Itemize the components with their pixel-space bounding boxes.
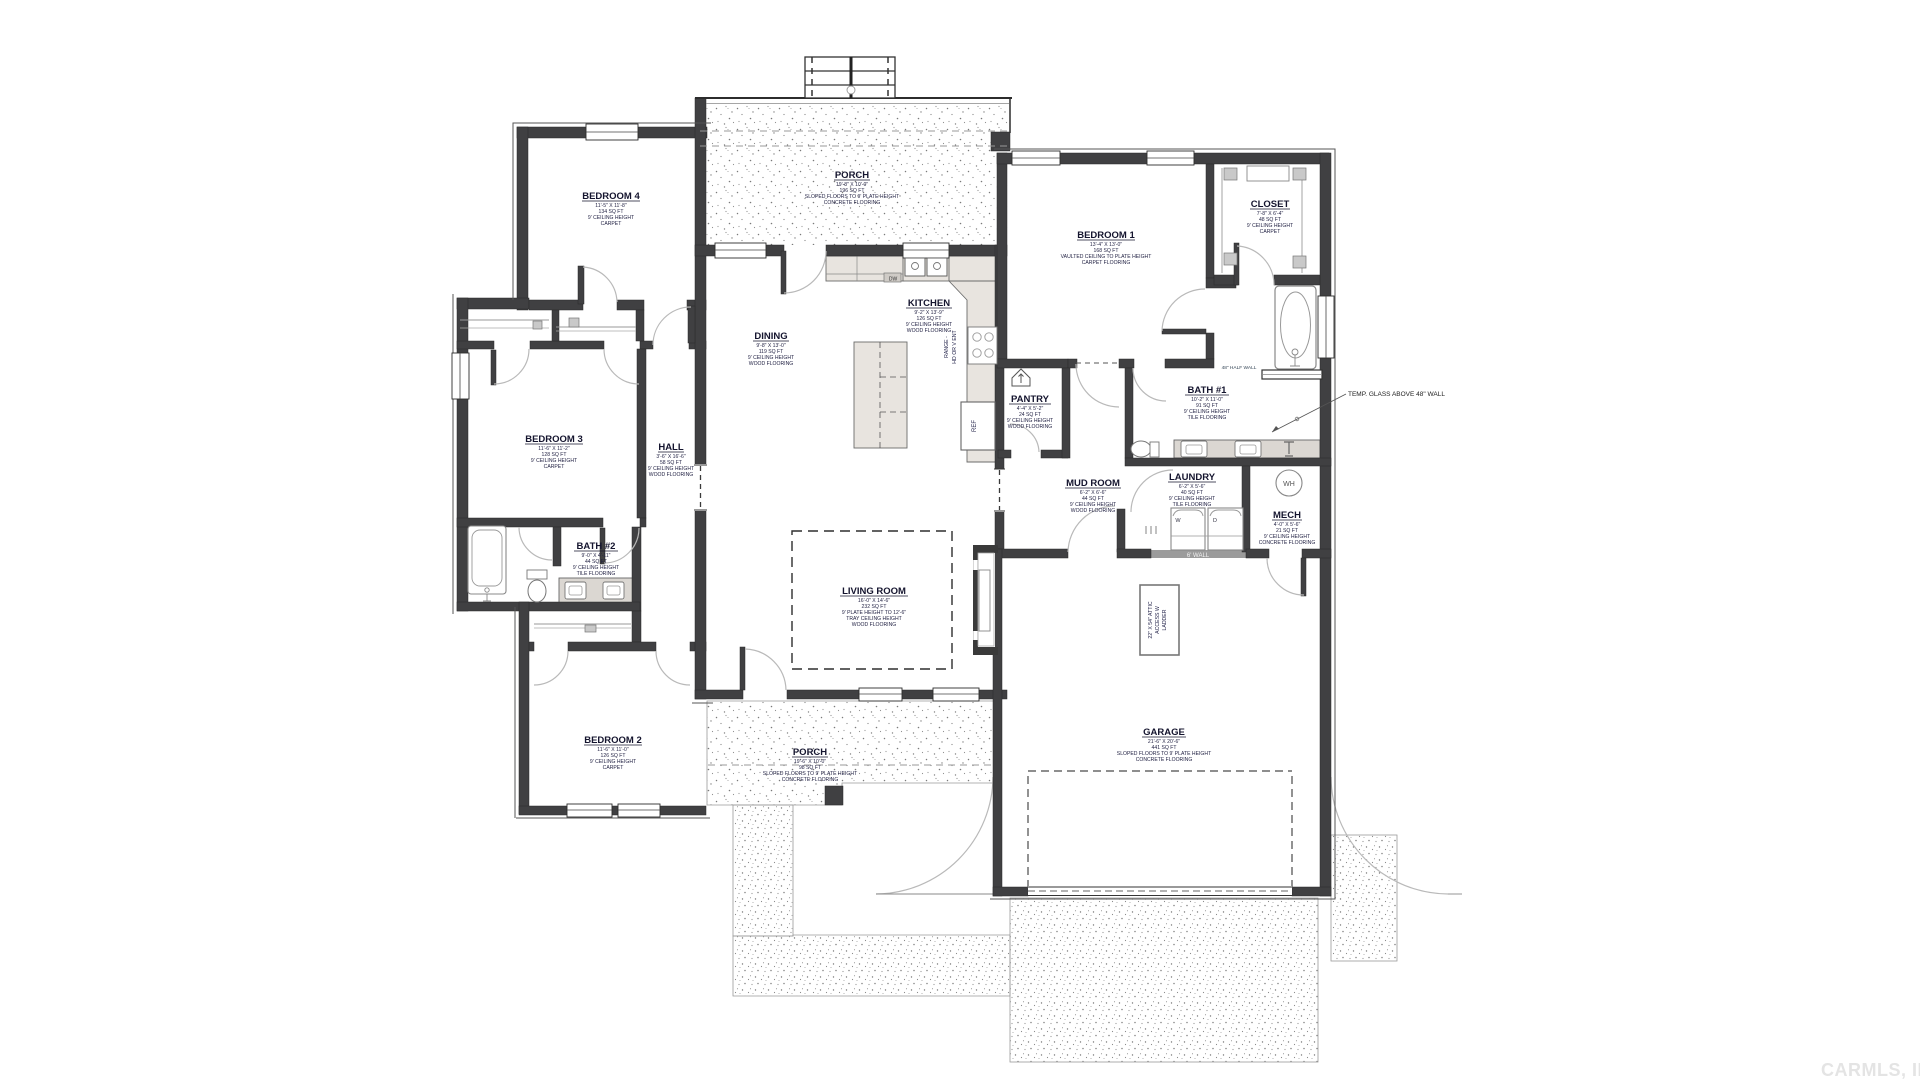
- svg-text:DW: DW: [889, 277, 898, 283]
- svg-text:GARAGE: GARAGE: [1143, 727, 1185, 738]
- svg-text:REF: REF: [972, 420, 978, 432]
- svg-text:ACCESS W: ACCESS W: [1155, 606, 1161, 634]
- svg-text:TILE FLOORING: TILE FLOORING: [577, 571, 616, 577]
- svg-text:W: W: [1175, 518, 1181, 524]
- svg-text:CARPET: CARPET: [1260, 229, 1281, 235]
- svg-text:WOOD FLOORING: WOOD FLOORING: [1071, 508, 1115, 514]
- svg-text:WOOD FLOORING: WOOD FLOORING: [907, 328, 951, 334]
- svg-text:CLOSET: CLOSET: [1251, 199, 1290, 210]
- svg-text:LIVING ROOM: LIVING ROOM: [842, 586, 906, 597]
- svg-text:LADDER: LADDER: [1162, 609, 1168, 630]
- svg-text:BATH #2: BATH #2: [577, 541, 616, 552]
- svg-text:CONCRETE FLOORING: CONCRETE FLOORING: [782, 777, 839, 783]
- svg-text:WOOD FLOORING: WOOD FLOORING: [749, 361, 793, 367]
- svg-text:WOOD FLOORING: WOOD FLOORING: [1008, 424, 1052, 430]
- svg-text:CONCRETE FLOORING: CONCRETE FLOORING: [824, 200, 881, 206]
- svg-text:TILE FLOORING: TILE FLOORING: [1188, 415, 1227, 421]
- svg-text:TEMP. GLASS ABOVE 48" WALL: TEMP. GLASS ABOVE 48" WALL: [1348, 391, 1445, 398]
- svg-text:BEDROOM 2: BEDROOM 2: [584, 735, 642, 746]
- svg-text:CARPET FLOORING: CARPET FLOORING: [1082, 260, 1131, 266]
- svg-text:CARMLS, INC: CARMLS, INC: [1821, 1060, 1920, 1080]
- svg-text:TILE FLOORING: TILE FLOORING: [1173, 502, 1212, 508]
- svg-text:PORCH: PORCH: [835, 170, 869, 181]
- svg-text:CARPET: CARPET: [603, 765, 624, 771]
- svg-text:MUD ROOM: MUD ROOM: [1066, 478, 1120, 489]
- svg-text:BEDROOM 3: BEDROOM 3: [525, 434, 583, 445]
- svg-text:D: D: [1213, 518, 1217, 524]
- svg-text:CONCRETE FLOORING: CONCRETE FLOORING: [1259, 540, 1316, 546]
- svg-text:PANTRY: PANTRY: [1011, 394, 1050, 405]
- svg-text:RANGE -: RANGE -: [944, 336, 950, 358]
- svg-text:HD OR V ENT: HD OR V ENT: [952, 329, 958, 363]
- svg-text:6' WALL: 6' WALL: [1187, 553, 1210, 559]
- svg-text:CONCRETE FLOORING: CONCRETE FLOORING: [1136, 757, 1193, 763]
- svg-text:MECH: MECH: [1273, 510, 1301, 521]
- svg-text:BEDROOM 4: BEDROOM 4: [582, 191, 640, 202]
- svg-text:BEDROOM 1: BEDROOM 1: [1077, 230, 1135, 241]
- svg-text:PORCH: PORCH: [793, 747, 827, 758]
- svg-text:DINING: DINING: [754, 331, 787, 342]
- svg-text:KITCHEN: KITCHEN: [908, 298, 950, 309]
- svg-text:CARPET: CARPET: [544, 464, 565, 470]
- svg-text:BATH #1: BATH #1: [1188, 385, 1228, 396]
- svg-text:HALL: HALL: [658, 442, 684, 453]
- svg-text:WH: WH: [1283, 481, 1295, 488]
- svg-text:22" X 54" ATTIC: 22" X 54" ATTIC: [1148, 601, 1154, 639]
- svg-text:48" HALF WALL: 48" HALF WALL: [1222, 365, 1257, 371]
- svg-text:WOOD FLOORING: WOOD FLOORING: [852, 622, 896, 628]
- svg-text:LAUNDRY: LAUNDRY: [1169, 472, 1216, 483]
- svg-text:WOOD FLOORING: WOOD FLOORING: [649, 472, 693, 478]
- svg-text:CARPET: CARPET: [601, 221, 622, 227]
